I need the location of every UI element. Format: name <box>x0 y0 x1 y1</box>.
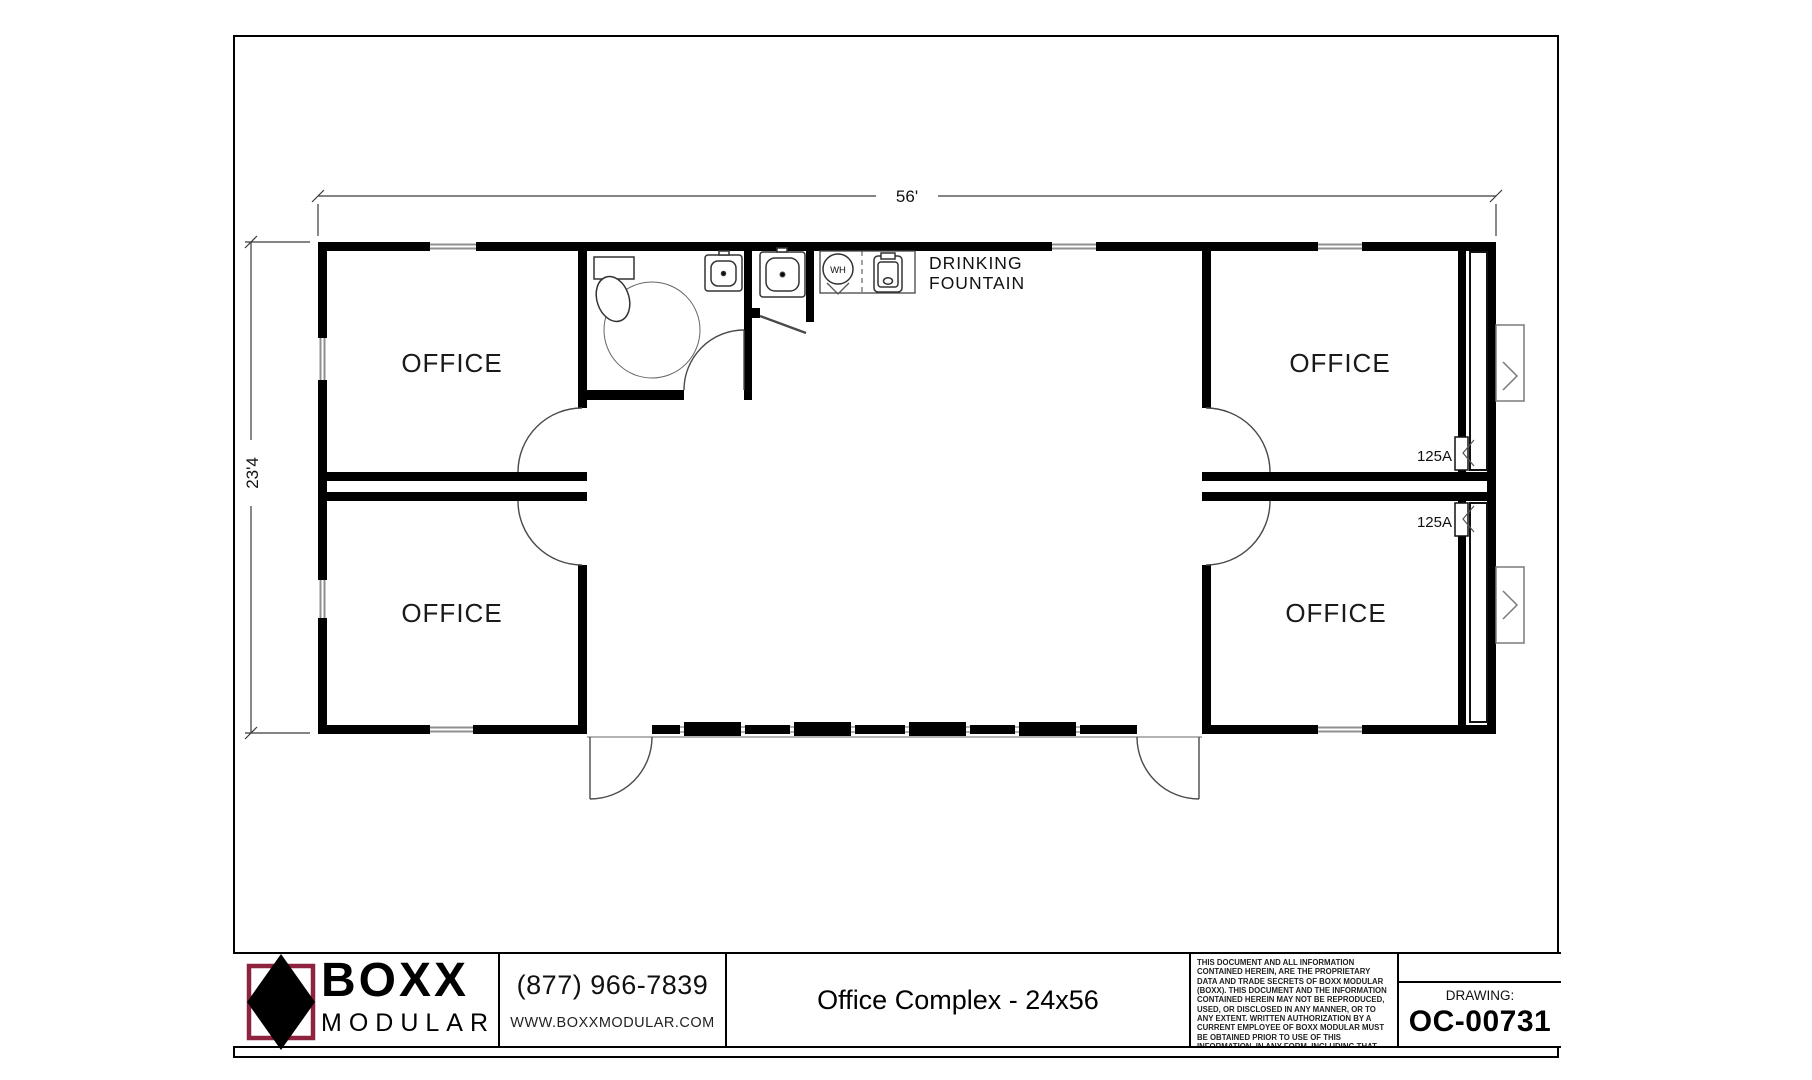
logo-word-boxx: BOXX <box>321 956 497 1006</box>
hvac-unit-bottom <box>1496 567 1524 643</box>
panel-label-top: 125A <box>1417 448 1452 465</box>
restroom-sink <box>705 251 742 291</box>
water-heater-label: WH <box>830 265 846 276</box>
room-label-office-bottom-left: OFFICE <box>401 598 502 628</box>
utility-sink <box>760 248 805 297</box>
electrical-panels: 125A 125A <box>1417 437 1474 536</box>
top-dimension-label: 56' <box>896 187 918 206</box>
legal-text: THIS DOCUMENT AND ALL INFORMATION CONTAI… <box>1197 958 1391 1046</box>
diamond-icon <box>247 954 315 1050</box>
room-label-office-bottom-right: OFFICE <box>1285 598 1386 628</box>
drawing-number: OC-00731 <box>1399 1005 1561 1039</box>
electrical-panel-top <box>1455 437 1468 470</box>
walls <box>318 242 1496 734</box>
logo-cell: BOXX MODULAR <box>233 954 500 1046</box>
phone-number: (877) 966-7839 <box>500 970 725 1001</box>
hvac-unit-top <box>1496 325 1524 401</box>
contact-cell: (877) 966-7839 WWW.BOXXMODULAR.COM <box>500 954 727 1046</box>
hvac-units <box>1496 325 1524 643</box>
website-url: WWW.BOXXMODULAR.COM <box>500 1015 725 1031</box>
drawing-number-cell: DRAWING: OC-00731 <box>1399 954 1561 1046</box>
drawing-number-empty-strip <box>1399 954 1561 983</box>
wh-fountain-alcove: WH <box>820 251 915 294</box>
room-label-office-top-left: OFFICE <box>401 348 502 378</box>
toilet-tank <box>594 257 634 279</box>
svg-text:FOUNTAIN: FOUNTAIN <box>929 273 1025 293</box>
drawing-title: Office Complex - 24x56 <box>817 985 1099 1016</box>
restroom-fixtures <box>591 248 805 378</box>
room-label-office-top-right: OFFICE <box>1289 348 1390 378</box>
electrical-panel-bottom <box>1455 503 1468 536</box>
floor-plan-svg: WH DRINKING FOUNTAIN 125A 125A <box>0 0 1812 1080</box>
legal-cell: THIS DOCUMENT AND ALL INFORMATION CONTAI… <box>1191 954 1399 1046</box>
toilet-bowl <box>591 272 636 326</box>
svg-text:DRINKING: DRINKING <box>929 253 1023 273</box>
drawing-title-cell: Office Complex - 24x56 <box>727 954 1191 1046</box>
drinking-fountain-label: DRINKING FOUNTAIN <box>929 253 1025 293</box>
drinking-fountain-icon <box>874 253 902 292</box>
boxx-diamond-logo <box>241 952 321 1052</box>
left-dimension-label: 23'4 <box>243 457 262 489</box>
right-wall-chases <box>1470 252 1487 722</box>
room-labels: OFFICE OFFICE OFFICE OFFICE <box>401 348 1390 628</box>
title-block: BOXX MODULAR (877) 966-7839 WWW.BOXXMODU… <box>233 952 1561 1048</box>
panel-label-bottom: 125A <box>1417 514 1452 531</box>
logo-word-modular: MODULAR <box>321 1008 497 1038</box>
drawing-caption: DRAWING: <box>1399 988 1561 1003</box>
